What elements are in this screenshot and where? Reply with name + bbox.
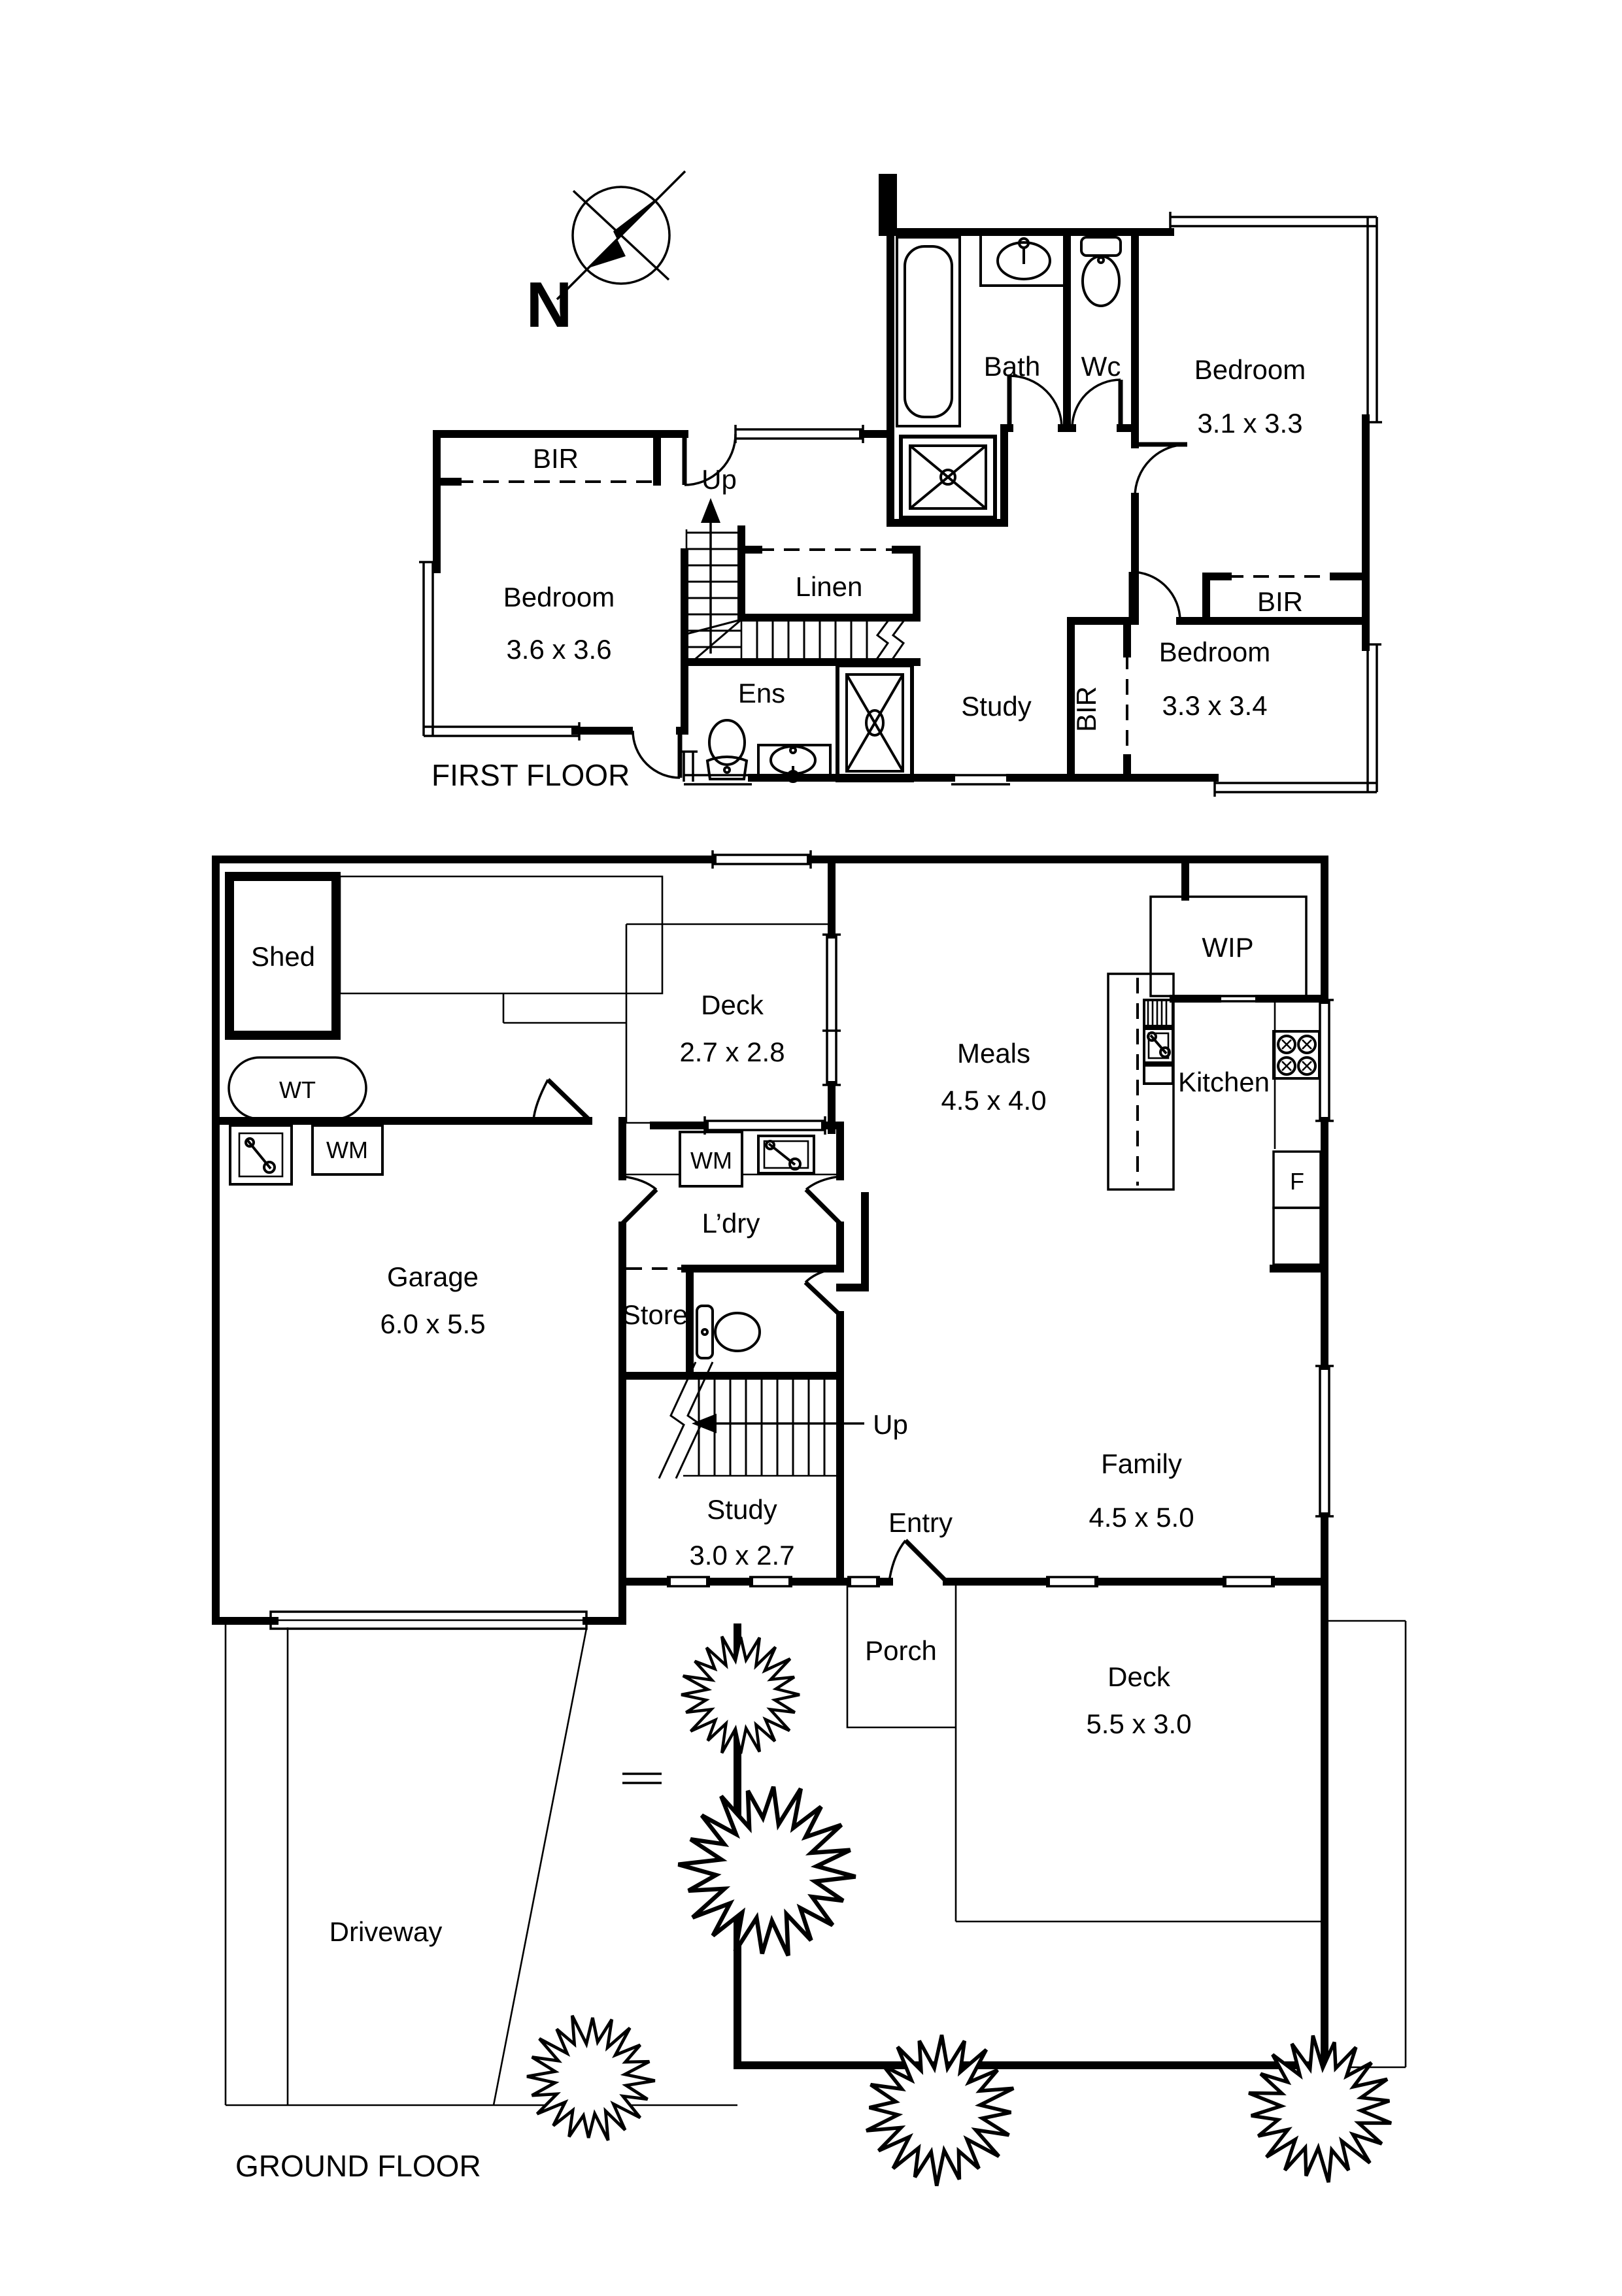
wm-garage-label: WM bbox=[326, 1137, 368, 1163]
meals-label: Meals bbox=[957, 1038, 1030, 1069]
bedroom3-dims: 3.3 x 3.4 bbox=[1162, 690, 1267, 721]
first-floor-plan: Bath Wc Bedroom 3.1 x 3.3 BIR Bedroom 3.… bbox=[419, 174, 1382, 797]
bir-side-label: BIR bbox=[1071, 686, 1102, 732]
tree-icon bbox=[647, 1751, 887, 1990]
family-label: Family bbox=[1101, 1448, 1182, 1479]
ens-shower-icon bbox=[837, 665, 912, 780]
north-arrow-icon: N bbox=[526, 171, 685, 341]
entry-label: Entry bbox=[888, 1507, 953, 1538]
bathtub-icon bbox=[897, 237, 960, 426]
ens-label: Ens bbox=[738, 678, 785, 708]
washing-machine-laundry: WM bbox=[680, 1132, 742, 1186]
gate bbox=[622, 1774, 662, 1783]
laundry-trough-icon bbox=[758, 1136, 814, 1173]
deck-rear-label: Deck bbox=[1107, 1661, 1171, 1692]
laundry-label: L’dry bbox=[702, 1208, 760, 1239]
fridge: F bbox=[1274, 1152, 1321, 1265]
tree-icon bbox=[681, 1637, 800, 1754]
fridge-label: F bbox=[1290, 1168, 1304, 1195]
floor-plan-svg: N bbox=[0, 0, 1622, 2293]
bath-label: Bath bbox=[984, 351, 1040, 382]
up-ff-label: Up bbox=[701, 464, 737, 495]
first-floor-title: FIRST FLOOR bbox=[431, 758, 630, 792]
wm-laundry-label: WM bbox=[690, 1147, 732, 1174]
up-gf-label: Up bbox=[873, 1409, 908, 1440]
bedroom3-label: Bedroom bbox=[1159, 637, 1270, 667]
linen-label: Linen bbox=[796, 571, 863, 602]
bath-shower-icon bbox=[901, 437, 995, 518]
wc-label: Wc bbox=[1081, 351, 1121, 382]
study-gf-dims: 3.0 x 2.7 bbox=[689, 1540, 794, 1571]
garage-sink-icon bbox=[230, 1125, 292, 1184]
bath-sink-icon bbox=[981, 236, 1067, 286]
ground-floor-title: GROUND FLOOR bbox=[235, 2149, 481, 2183]
tree-icon bbox=[511, 1998, 669, 2157]
ground-floor-plan: Shed bbox=[216, 850, 1417, 2205]
stair-break bbox=[875, 618, 906, 662]
study-gf-label: Study bbox=[707, 1494, 777, 1525]
garage-dims: 6.0 x 5.5 bbox=[380, 1308, 485, 1339]
deck-top-dims: 2.7 x 2.8 bbox=[679, 1037, 785, 1067]
shed-label: Shed bbox=[251, 941, 315, 972]
bir-left-label: BIR bbox=[533, 443, 579, 474]
water-tank: WT bbox=[229, 1057, 366, 1119]
ens-toilet-icon bbox=[707, 720, 747, 779]
meals-dims: 4.5 x 4.0 bbox=[941, 1085, 1046, 1116]
bedroom1-dims: 3.1 x 3.3 bbox=[1197, 408, 1302, 439]
wt-label: WT bbox=[279, 1076, 316, 1103]
study-ff-label: Study bbox=[961, 691, 1031, 722]
driveway-label: Driveway bbox=[329, 1916, 443, 1947]
stove-icon bbox=[1274, 1031, 1319, 1078]
tree-icon bbox=[846, 2016, 1034, 2203]
bir-right-label: BIR bbox=[1257, 586, 1303, 617]
wip-label: WIP bbox=[1202, 932, 1253, 963]
north-label: N bbox=[526, 269, 573, 341]
kitchen-island bbox=[1108, 974, 1174, 1190]
bedroom2-label: Bedroom bbox=[503, 582, 615, 612]
kitchen-sink-icon bbox=[1144, 1000, 1173, 1084]
bedroom1-label: Bedroom bbox=[1194, 354, 1306, 385]
deck-top-label: Deck bbox=[701, 990, 764, 1020]
washing-machine-garage: WM bbox=[313, 1125, 382, 1174]
wall-stub bbox=[879, 174, 897, 236]
garage-door bbox=[271, 1612, 586, 1629]
family-dims: 4.5 x 5.0 bbox=[1089, 1502, 1194, 1533]
store-label: Store bbox=[622, 1299, 688, 1330]
deck-rear-dims: 5.5 x 3.0 bbox=[1086, 1708, 1191, 1739]
garage-label: Garage bbox=[387, 1261, 479, 1292]
porch-label: Porch bbox=[865, 1635, 937, 1666]
floor-plan-page: N bbox=[0, 0, 1622, 2293]
wc-toilet-icon bbox=[1081, 237, 1121, 306]
shed: Shed bbox=[229, 876, 336, 1035]
powder-toilet-icon bbox=[697, 1306, 760, 1358]
bedroom2-dims: 3.6 x 3.6 bbox=[506, 634, 611, 665]
kitchen-label: Kitchen bbox=[1178, 1067, 1270, 1097]
